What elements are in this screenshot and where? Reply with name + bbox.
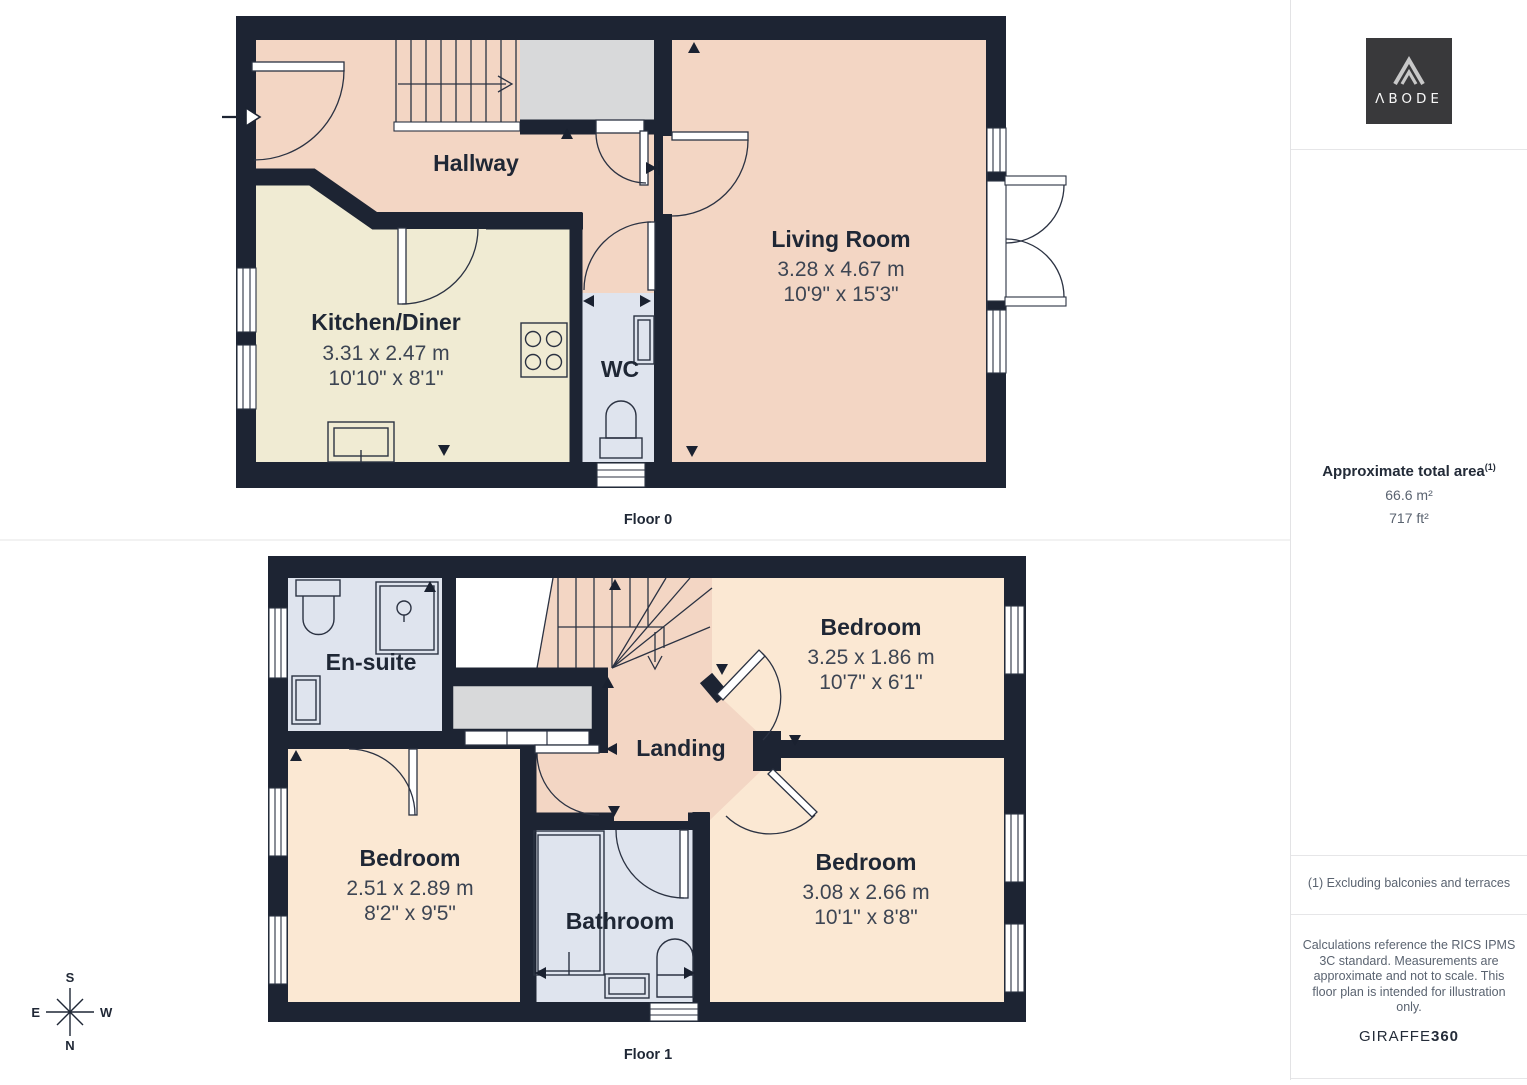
stair-void xyxy=(452,578,553,668)
understairs-door-leaf xyxy=(640,131,648,185)
sidebar-divider-3 xyxy=(1291,914,1527,915)
bedroom-bottom-right-dim-metric: 3.08 x 2.66 m xyxy=(802,881,929,904)
living-room-window-band xyxy=(987,128,1006,373)
living-room-door-leaf xyxy=(672,132,748,140)
bedroom-left-label: Bedroom xyxy=(360,845,461,871)
floor1-plan: En-suite Bedroom 3.25 x 1.86 m 10'7" x 6… xyxy=(268,556,1026,1063)
bedroom-bottom-right-window-1 xyxy=(1005,814,1024,882)
living-room-dim-metric: 3.28 x 4.67 m xyxy=(777,258,904,281)
floorplan-page: { "branding": { "logo_text": "ΛBODE", "v… xyxy=(0,0,1527,1080)
wc-door-leaf xyxy=(648,222,655,290)
floor1-label: Floor 1 xyxy=(624,1047,672,1063)
total-area-title-text: Approximate total area xyxy=(1322,463,1485,480)
sidebar-divider-4 xyxy=(1291,1078,1527,1079)
bedroom-bottom-right-floor xyxy=(710,758,1004,1002)
understairs-door-opening xyxy=(596,120,644,133)
floorplan-svg: Hallway Kitchen/Diner 3.31 x 2.47 m 10'1… xyxy=(0,0,1290,1080)
wardrobe-doors xyxy=(465,731,589,745)
bedroom-left-door-opening xyxy=(535,745,599,753)
compass-rose: S N E W xyxy=(31,970,113,1053)
bathroom-door-leaf xyxy=(680,830,688,898)
balcony-footnote: (1) Excluding balconies and terraces xyxy=(1291,876,1527,890)
bedroom-top-right-dim-metric: 3.25 x 1.86 m xyxy=(807,646,934,669)
kitchen-window-1 xyxy=(237,268,256,332)
french-doors xyxy=(1005,176,1066,306)
giraffe360-brand-suffix: 360 xyxy=(1431,1028,1459,1045)
bedroom-top-right-window xyxy=(1005,606,1024,674)
kitchen-dim-metric: 3.31 x 2.47 m xyxy=(322,342,449,365)
bedroom-left-window-2 xyxy=(269,916,287,984)
giraffe360-brand: GIRAFFE360 xyxy=(1291,1028,1527,1045)
sidebar-divider-2 xyxy=(1291,855,1527,856)
sidebar: ΛBODE Approximate total area(1) 66.6 m² … xyxy=(1290,0,1527,1080)
kitchen-label: Kitchen/Diner xyxy=(311,309,461,335)
abode-logo-mark-icon xyxy=(1389,56,1429,86)
bedroom-bottom-right-label: Bedroom xyxy=(816,849,917,875)
total-area-metric: 66.6 m² xyxy=(1291,487,1527,503)
landing-label: Landing xyxy=(636,735,725,761)
floorplan-canvas: Hallway Kitchen/Diner 3.31 x 2.47 m 10'1… xyxy=(0,0,1290,1080)
bathroom-label: Bathroom xyxy=(566,908,675,934)
living-room-dim-imperial: 10'9" x 15'3" xyxy=(783,283,898,306)
compass-east: E xyxy=(31,1005,40,1020)
abode-logo: ΛBODE xyxy=(1366,38,1452,124)
kitchen-door-leaf xyxy=(398,228,406,304)
bedroom-top-right-label: Bedroom xyxy=(821,614,922,640)
sidebar-divider-1 xyxy=(1291,149,1527,150)
floor0-label: Floor 0 xyxy=(624,512,672,528)
bedroom-left-floor xyxy=(288,749,520,1002)
ensuite-label: En-suite xyxy=(326,649,417,675)
compass-south: S xyxy=(66,970,75,985)
kitchen-window-2 xyxy=(237,345,256,409)
total-area-footnote-marker: (1) xyxy=(1485,462,1496,472)
disclaimer-text: Calculations reference the RICS IPMS 3C … xyxy=(1302,938,1516,1016)
bedroom-left-dim-imperial: 8'2" x 9'5" xyxy=(364,902,456,925)
total-area-imperial: 717 ft² xyxy=(1291,510,1527,526)
floor0-plan: Hallway Kitchen/Diner 3.31 x 2.47 m 10'1… xyxy=(222,16,1066,528)
entry-door-leaf xyxy=(252,62,344,71)
bedroom-bottom-right-dim-imperial: 10'1" x 8'8" xyxy=(814,906,918,929)
abode-logo-text: ΛBODE xyxy=(1375,91,1443,107)
compass-west: W xyxy=(100,1005,113,1020)
wc-window xyxy=(597,463,645,487)
compass-north: N xyxy=(65,1038,74,1053)
wall-stub-ensuite xyxy=(411,731,467,749)
understairs-void xyxy=(520,40,654,122)
bedroom-left-dim-metric: 2.51 x 2.89 m xyxy=(346,877,473,900)
wc-label: WC xyxy=(601,356,639,382)
hallway-label: Hallway xyxy=(433,150,519,176)
bedroom-bottom-right-window-2 xyxy=(1005,924,1024,992)
giraffe360-brand-name: GIRAFFE xyxy=(1359,1028,1431,1045)
ensuite-window xyxy=(269,608,287,678)
wall-stub-landing-tip xyxy=(753,731,781,771)
total-area-title: Approximate total area(1) xyxy=(1291,462,1527,480)
bathroom-window xyxy=(650,1003,698,1021)
wardrobe-void xyxy=(452,685,593,730)
total-area-block: Approximate total area(1) 66.6 m² 717 ft… xyxy=(1291,462,1527,526)
bedroom-left-window-1 xyxy=(269,788,287,856)
living-room-label: Living Room xyxy=(771,226,910,252)
bedroom-top-right-dim-imperial: 10'7" x 6'1" xyxy=(819,671,923,694)
ensuite-door-leaf xyxy=(409,749,417,815)
kitchen-dim-imperial: 10'10" x 8'1" xyxy=(328,367,443,390)
